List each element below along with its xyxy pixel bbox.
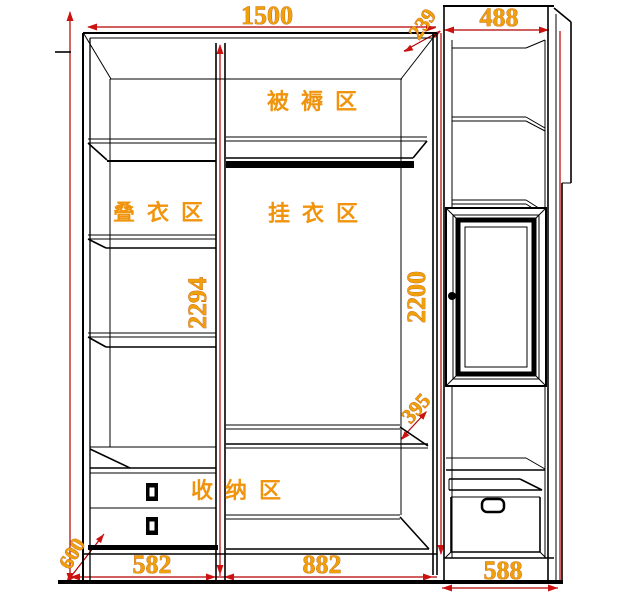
zone-labels: 被褥区 叠衣区 挂衣区 收纳区 xyxy=(113,89,370,503)
drawer-handle-inner xyxy=(150,488,155,497)
dim-middle-bay-width: 882 xyxy=(303,550,342,579)
mirror-door xyxy=(446,208,546,386)
zone-folding-label: 叠衣区 xyxy=(113,200,215,225)
hanging-rod xyxy=(226,161,414,168)
zone-storage-label: 收纳区 xyxy=(191,478,293,503)
dim-main-width: 1500 xyxy=(241,1,293,30)
storage-box xyxy=(444,479,554,558)
dim-side-bay-width: 588 xyxy=(484,556,523,585)
dim-main-inner-height: 2294 xyxy=(183,277,212,329)
wardrobe-diagram: 1500 488 239 2294 2200 395 582 882 588 6… xyxy=(0,0,637,592)
dim-side-width: 488 xyxy=(480,3,519,32)
door-knob xyxy=(448,292,456,300)
zone-hanging-label: 挂衣区 xyxy=(268,201,370,226)
drawer-handle-inner xyxy=(150,522,155,531)
side-cabinet xyxy=(443,6,571,580)
dim-shelf-gap: 395 xyxy=(396,389,435,428)
box-handle xyxy=(482,499,504,512)
dim-depth: 600 xyxy=(54,534,91,573)
dim-left-bay-width: 582 xyxy=(133,550,172,579)
zone-bedding-label: 被褥区 xyxy=(267,89,369,114)
dim-side-inner-height: 2200 xyxy=(402,271,431,323)
side-return-panel xyxy=(554,8,571,580)
